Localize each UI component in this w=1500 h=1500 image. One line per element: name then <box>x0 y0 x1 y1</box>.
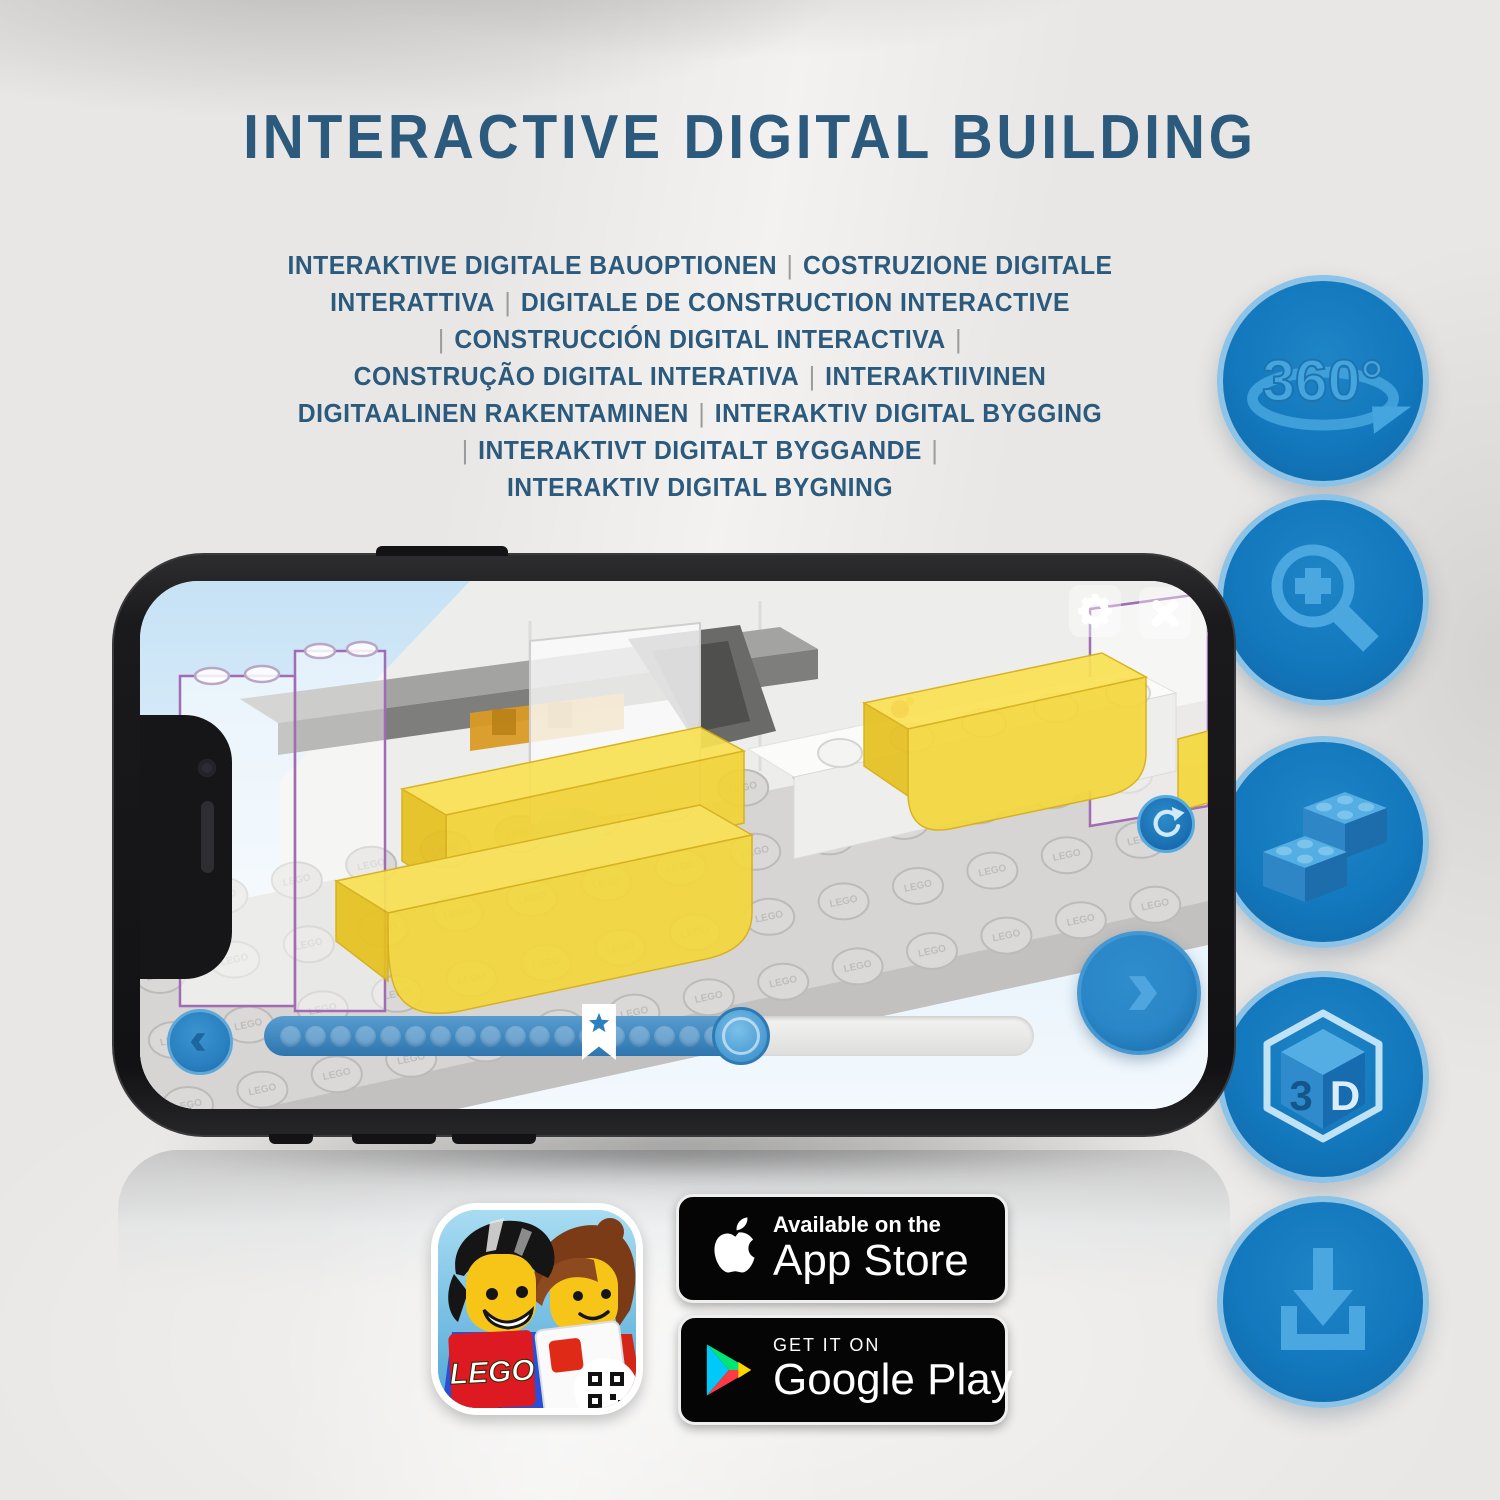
next-step-button[interactable] <box>1077 931 1201 1055</box>
phone-screen: LEGOLEGOLEGOLEGOLEGOLEGOLEGOLEGOLEGOLEGO… <box>140 581 1208 1109</box>
cube-d-label: D <box>1330 1072 1360 1119</box>
mute-switch <box>269 1134 313 1144</box>
chevron-left-icon <box>182 1024 218 1060</box>
page-title-text: INTERACTIVE DIGITAL BUILDING <box>243 102 1257 173</box>
page-title: INTERACTIVE DIGITAL BUILDING <box>0 102 1500 173</box>
pipe-divider: | <box>438 324 445 354</box>
google-play-badge[interactable]: GET IT ON Google Play <box>678 1315 1008 1425</box>
power-button <box>376 546 508 556</box>
phone-notch <box>140 715 232 979</box>
subtitle-line: CONSTRUÇÃO DIGITAL INTERATIVA|INTERAKTII… <box>178 358 1223 395</box>
reset-rotation-button[interactable] <box>1137 795 1195 853</box>
progress-dot <box>430 1026 451 1047</box>
progress-dot <box>629 1026 650 1047</box>
previous-step-button[interactable] <box>167 1009 233 1075</box>
progress-dot <box>480 1026 501 1047</box>
google-play-text: GET IT ON Google Play <box>773 1336 1013 1403</box>
progress-dot <box>505 1026 526 1047</box>
subtitle-line: |INTERAKTIVT DIGITALT BYGGANDE| <box>178 432 1223 469</box>
progress-dot <box>405 1026 426 1047</box>
app-store-tagline: Available on the <box>773 1213 969 1236</box>
phone-mockup: LEGOLEGOLEGOLEGOLEGOLEGOLEGOLEGOLEGOLEGO… <box>112 553 1236 1137</box>
front-camera <box>198 759 216 777</box>
progress-dot <box>355 1026 376 1047</box>
build-progress-bar[interactable] <box>264 1016 1034 1056</box>
progress-dot <box>305 1026 326 1047</box>
star-icon <box>588 1012 610 1034</box>
progress-dot <box>280 1026 301 1047</box>
progress-dot <box>679 1026 700 1047</box>
progress-thumb[interactable] <box>712 1007 770 1065</box>
progress-dot <box>654 1026 675 1047</box>
subtitle-line: INTERATTIVA|DIGITALE DE CONSTRUCTION INT… <box>178 284 1223 321</box>
progress-dot <box>380 1026 401 1047</box>
apple-icon <box>699 1216 757 1282</box>
gear-icon <box>1073 589 1117 633</box>
feature-download <box>1217 1196 1429 1408</box>
360-label: 360° <box>1262 349 1384 414</box>
chevron-right-icon <box>1104 958 1174 1028</box>
close-icon <box>1139 587 1191 639</box>
lego-logo: LEGO <box>448 1330 537 1408</box>
pipe-divider: | <box>462 435 469 465</box>
progress-dot <box>455 1026 476 1047</box>
lego-app-artwork: LEGO <box>438 1210 636 1408</box>
lego-app-icon[interactable]: LEGO <box>431 1203 643 1415</box>
subtitle-line: |CONSTRUCCIÓN DIGITAL INTERACTIVA| <box>178 321 1223 358</box>
progress-dot <box>330 1026 351 1047</box>
lego-logo-text: LEGO <box>449 1354 536 1391</box>
app-store-badge[interactable]: Available on the App Store <box>676 1194 1008 1303</box>
earpiece-speaker <box>201 801 214 873</box>
feature-zoom <box>1217 494 1429 706</box>
3d-cube-icon: 3 D <box>1253 1007 1393 1147</box>
close-button[interactable] <box>1139 587 1191 639</box>
pipe-divider: | <box>698 398 705 428</box>
cube-3-label: 3 <box>1289 1072 1312 1119</box>
download-icon <box>1253 1232 1393 1372</box>
rotate-icon <box>1146 804 1186 844</box>
subtitle: INTERAKTIVE DIGITALE BAUOPTIONEN|COSTRUZ… <box>150 247 1250 506</box>
zoom-in-icon <box>1253 530 1393 670</box>
progress-dot <box>554 1026 575 1047</box>
app-store-name: App Store <box>773 1238 969 1284</box>
pipe-divider: | <box>955 324 962 354</box>
feature-3d-view: 3 D <box>1217 971 1429 1183</box>
pipe-divider: | <box>809 361 816 391</box>
volume-down-button <box>452 1134 536 1144</box>
lego-brick-icon <box>1248 772 1398 912</box>
app-store-text: Available on the App Store <box>773 1213 969 1284</box>
pipe-divider: | <box>504 287 511 317</box>
progress-fill <box>264 1016 741 1056</box>
google-play-name: Google Play <box>773 1357 1013 1403</box>
google-play-tagline: GET IT ON <box>773 1336 1013 1355</box>
subtitle-line: INTERAKTIVE DIGITALE BAUOPTIONEN|COSTRUZ… <box>178 247 1223 284</box>
google-play-icon <box>701 1339 757 1401</box>
pipe-divider: | <box>787 250 794 280</box>
pipe-divider: | <box>931 435 938 465</box>
subtitle-line: INTERAKTIV DIGITAL BYGNING <box>178 469 1223 506</box>
feature-bricks <box>1217 736 1429 948</box>
volume-up-button <box>352 1134 436 1144</box>
settings-button[interactable] <box>1069 585 1121 637</box>
360-rotation-icon: 360° <box>1225 311 1421 451</box>
subtitle-line: DIGITAALINEN RAKENTAMINEN|INTERAKTIV DIG… <box>178 395 1223 432</box>
progress-dot <box>529 1026 550 1047</box>
